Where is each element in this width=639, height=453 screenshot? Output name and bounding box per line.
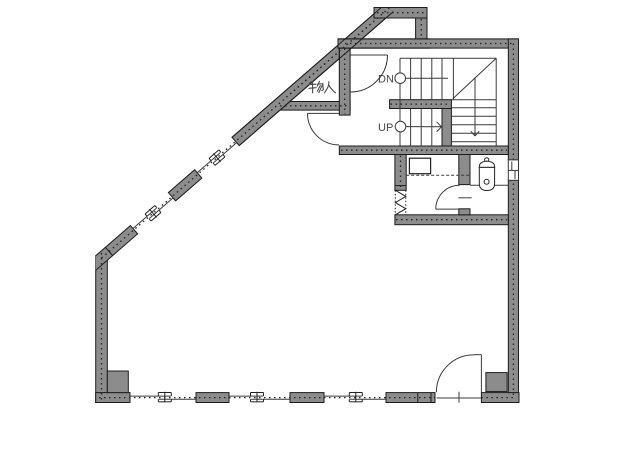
svg-text:DN: DN bbox=[378, 73, 394, 85]
svg-text:UP: UP bbox=[378, 122, 393, 134]
